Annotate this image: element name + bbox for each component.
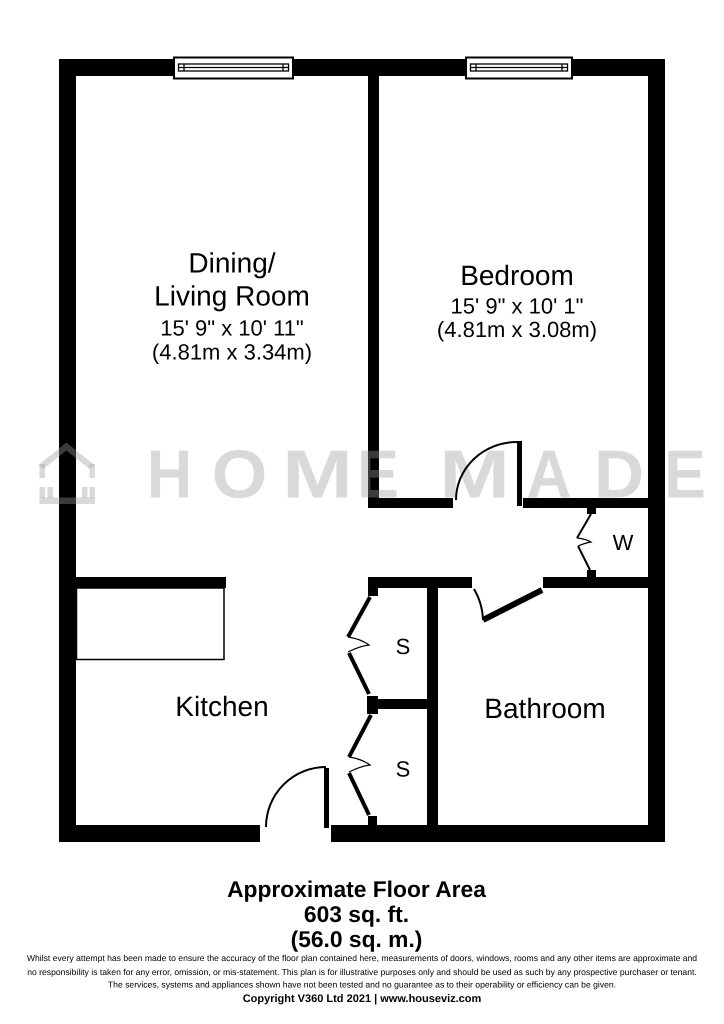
svg-text:(4.81m x 3.34m): (4.81m x 3.34m)	[152, 340, 312, 365]
svg-text:no responsibility is taken for: no responsibility is taken for any error…	[27, 967, 697, 977]
svg-text:(56.0 sq. m.): (56.0 sq. m.)	[291, 926, 423, 952]
svg-text:S: S	[396, 634, 411, 659]
svg-text:M: M	[439, 437, 510, 513]
svg-text:D: D	[594, 437, 644, 513]
svg-text:The services, systems and appl: The services, systems and appliances sho…	[108, 980, 616, 990]
svg-text:M: M	[282, 437, 353, 513]
svg-text:E: E	[357, 437, 399, 513]
svg-text:603 sq. ft.: 603 sq. ft.	[304, 901, 409, 927]
svg-text:Whilst every attempt has been: Whilst every attempt has been made to en…	[27, 953, 697, 963]
svg-text:H: H	[147, 437, 192, 513]
svg-text:(4.81m x 3.08m): (4.81m x 3.08m)	[437, 317, 597, 342]
svg-text:Kitchen: Kitchen	[175, 691, 268, 722]
svg-text:W: W	[613, 530, 634, 555]
svg-text:A: A	[526, 437, 571, 513]
svg-text:15' 9" x 10' 1": 15' 9" x 10' 1"	[451, 294, 584, 319]
svg-text:Approximate Floor Area: Approximate Floor Area	[227, 876, 486, 902]
svg-text:Living Room: Living Room	[154, 280, 310, 311]
svg-text:Copyright V360 Ltd 2021 | www.: Copyright V360 Ltd 2021 | www.houseviz.c…	[243, 993, 482, 1005]
svg-text:Dining/: Dining/	[188, 248, 275, 279]
svg-text:Bedroom: Bedroom	[460, 260, 574, 291]
svg-text:O: O	[212, 437, 268, 513]
svg-text:S: S	[396, 757, 411, 782]
svg-text:15' 9" x 10' 11": 15' 9" x 10' 11"	[160, 316, 303, 341]
svg-text:Bathroom: Bathroom	[484, 693, 605, 724]
svg-text:E: E	[664, 437, 706, 513]
